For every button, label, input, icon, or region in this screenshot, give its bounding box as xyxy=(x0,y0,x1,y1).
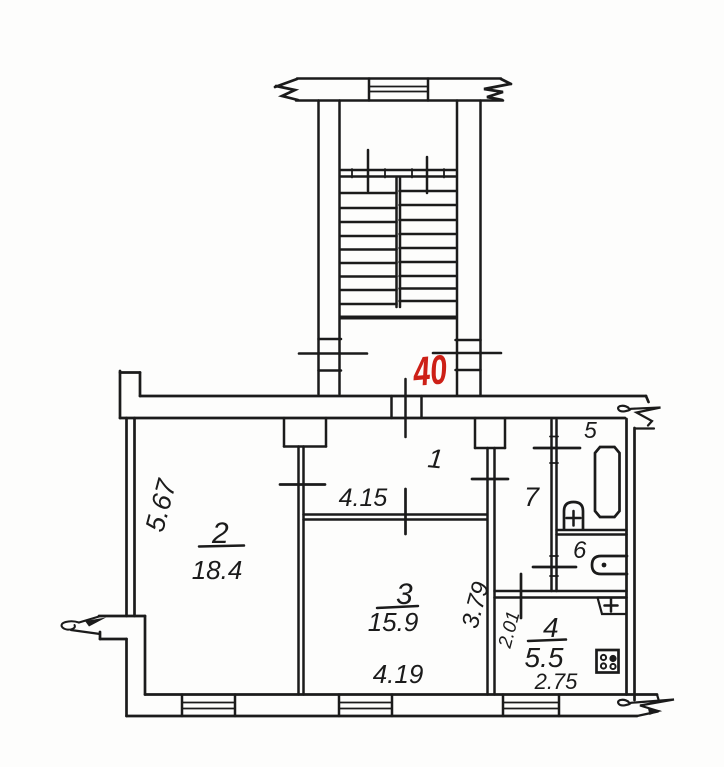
svg-text:2.75: 2.75 xyxy=(534,669,579,694)
svg-text:6: 6 xyxy=(573,537,587,564)
svg-text:4.19: 4.19 xyxy=(373,659,424,689)
svg-text:1: 1 xyxy=(426,443,444,474)
svg-text:7: 7 xyxy=(524,482,540,512)
svg-text:5: 5 xyxy=(584,417,597,443)
svg-text:5.67: 5.67 xyxy=(140,475,183,534)
svg-text:40: 40 xyxy=(410,346,449,395)
svg-text:3.79: 3.79 xyxy=(457,579,495,631)
svg-text:18.4: 18.4 xyxy=(192,555,243,585)
svg-text:15.9: 15.9 xyxy=(368,607,419,637)
svg-text:4: 4 xyxy=(543,612,559,643)
svg-text:2.01: 2.01 xyxy=(495,609,525,651)
svg-text:4.15: 4.15 xyxy=(339,484,388,512)
